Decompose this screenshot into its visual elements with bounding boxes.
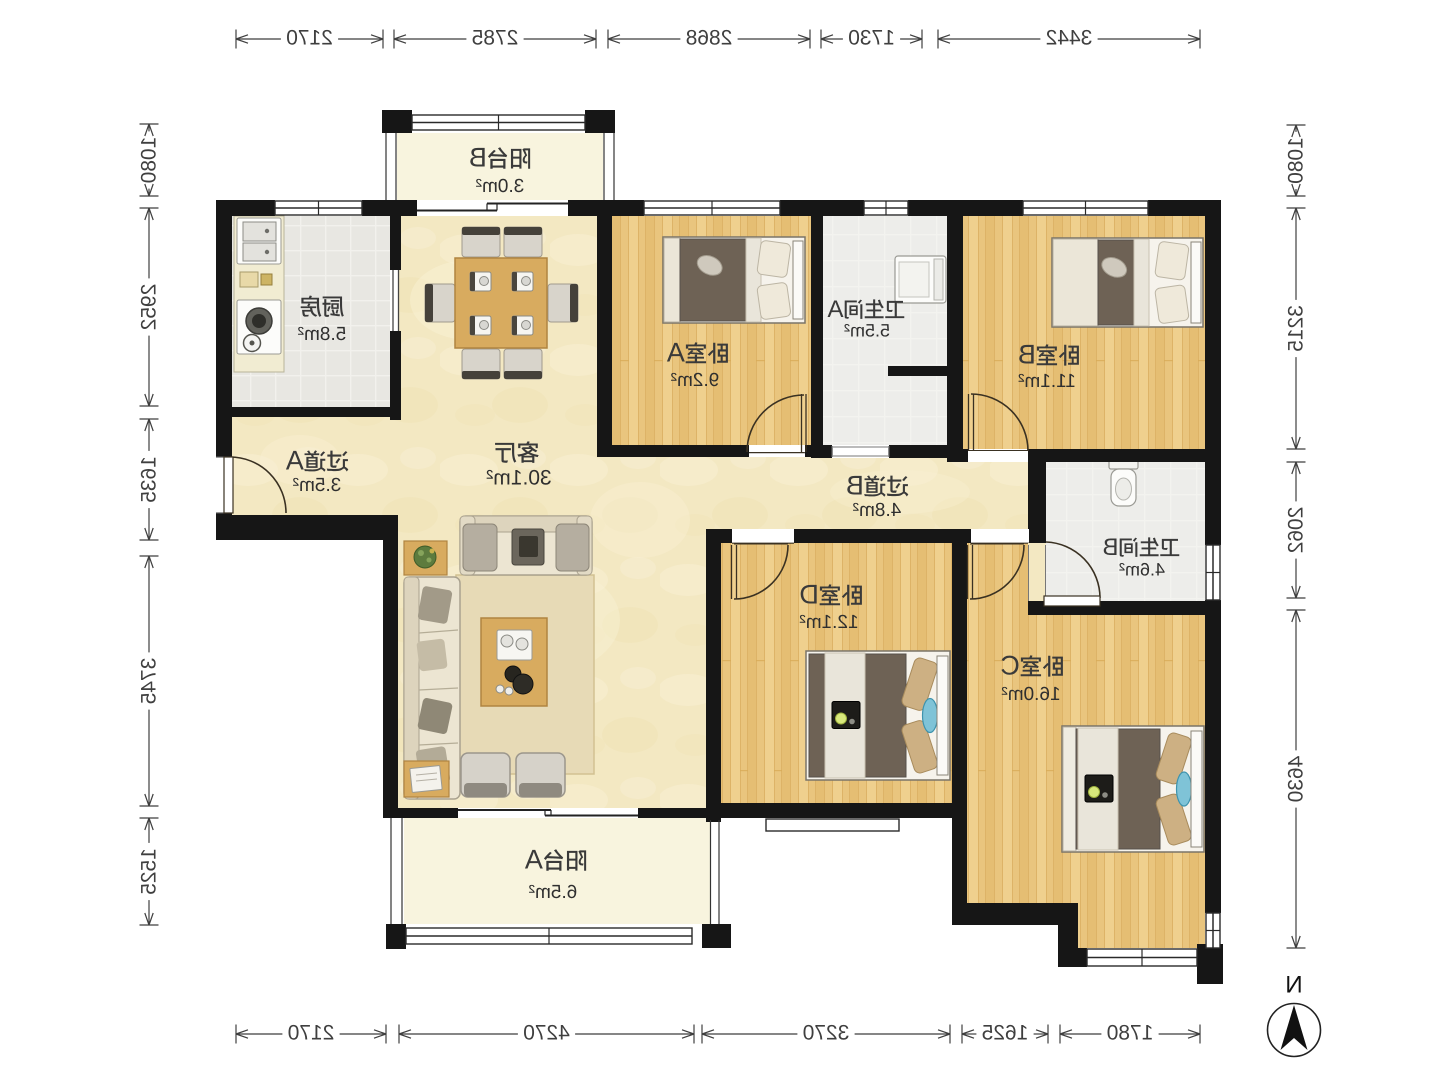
svg-text:4270: 4270	[523, 1022, 570, 1045]
svg-text:6.5m²: 6.5m²	[529, 882, 578, 903]
svg-text:D: D	[799, 580, 819, 610]
svg-text:1730: 1730	[848, 27, 895, 50]
svg-text:4630: 4630	[1285, 756, 1308, 803]
svg-text:16.0m²: 16.0m²	[1001, 684, 1060, 705]
svg-text:A: A	[667, 338, 685, 368]
svg-text:2062: 2062	[1285, 507, 1308, 554]
svg-text:9.2m²: 9.2m²	[671, 370, 720, 391]
svg-text:1080: 1080	[1285, 137, 1308, 184]
svg-text:A: A	[525, 845, 543, 875]
svg-text:3745: 3745	[138, 658, 161, 705]
svg-text:3.5m²: 3.5m²	[293, 475, 342, 496]
svg-text:5.8m²: 5.8m²	[298, 324, 347, 345]
svg-text:C: C	[1000, 651, 1020, 681]
svg-text:1635: 1635	[138, 456, 161, 503]
svg-text:3215: 3215	[1285, 305, 1308, 352]
svg-text:2785: 2785	[472, 27, 519, 50]
svg-text:1525: 1525	[138, 848, 161, 895]
svg-text:B: B	[1102, 534, 1118, 561]
svg-text:2170: 2170	[288, 1022, 335, 1045]
svg-text:B: B	[469, 143, 487, 173]
svg-text:3.0m²: 3.0m²	[476, 176, 525, 197]
svg-text:2952: 2952	[138, 284, 161, 331]
svg-text:A: A	[827, 296, 843, 323]
svg-text:2170: 2170	[286, 27, 333, 50]
svg-text:2868: 2868	[686, 27, 733, 50]
svg-text:4.6m²: 4.6m²	[1119, 559, 1165, 579]
svg-text:30.1m²: 30.1m²	[486, 467, 551, 490]
svg-text:5.5m²: 5.5m²	[844, 320, 890, 340]
svg-text:11.1m²: 11.1m²	[1018, 371, 1076, 392]
svg-text:3270: 3270	[803, 1022, 850, 1045]
svg-text:1625: 1625	[982, 1022, 1029, 1045]
svg-text:1780: 1780	[1107, 1022, 1154, 1045]
svg-text:4.8m²: 4.8m²	[853, 500, 902, 521]
svg-text:3442: 3442	[1046, 27, 1093, 50]
svg-text:1080: 1080	[138, 137, 161, 184]
svg-text:B: B	[846, 471, 864, 501]
svg-text:12.1m²: 12.1m²	[799, 612, 858, 633]
svg-text:B: B	[1018, 340, 1036, 370]
svg-text:N: N	[1285, 972, 1302, 999]
svg-text:A: A	[286, 446, 304, 476]
